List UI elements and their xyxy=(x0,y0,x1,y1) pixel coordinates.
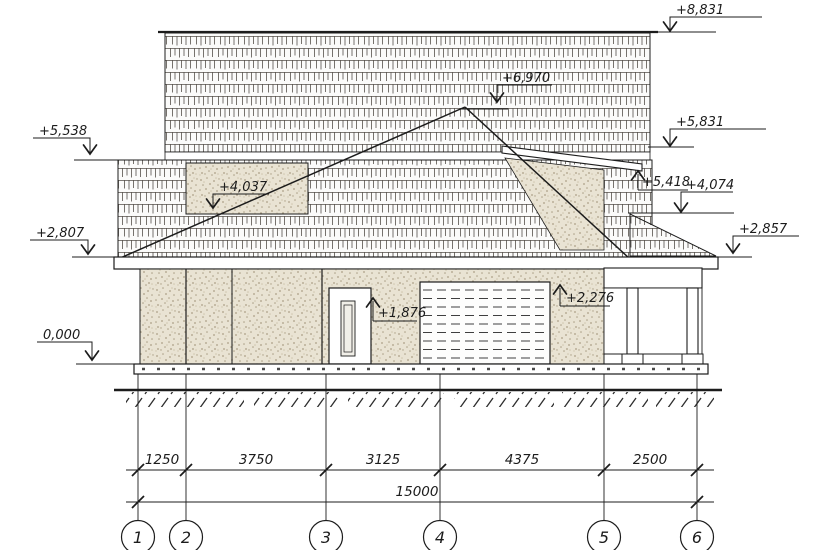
axis-label-2: 2 xyxy=(181,528,191,547)
porch xyxy=(604,268,703,364)
mark-label: +5,831 xyxy=(676,115,724,130)
porch-beam xyxy=(604,268,702,288)
elevation-mark-2807: +2,807 xyxy=(30,226,116,257)
porch-column-right xyxy=(687,288,698,354)
dim-label-seg3: 3125 xyxy=(366,452,400,468)
axis-label-3: 3 xyxy=(321,528,331,547)
axis-label-6: 6 xyxy=(692,528,702,547)
elevation-drawing: 1250 3750 3125 4375 2500 15000 1 2 3 4 5… xyxy=(0,0,825,550)
axis-bubbles xyxy=(122,521,714,550)
axis-label-1: 1 xyxy=(133,528,143,547)
porch-roof-slope xyxy=(630,214,716,256)
porch-column-base xyxy=(682,354,703,364)
dim-label-seg5: 2500 xyxy=(633,452,667,468)
mark-label: +6,970 xyxy=(502,71,550,86)
dim-label-seg2: 3750 xyxy=(239,452,273,468)
elevation-mark-0000: 0,000 xyxy=(37,328,134,364)
dim-label-seg1: 1250 xyxy=(145,452,179,468)
porch-column-base xyxy=(622,354,643,364)
porch-column-left xyxy=(627,288,638,354)
mark-label: +4,074 xyxy=(686,178,734,193)
axis-label-4: 4 xyxy=(435,528,445,547)
building xyxy=(114,32,734,374)
mark-label: +5,538 xyxy=(39,124,87,139)
mark-label: +1,876 xyxy=(378,306,426,321)
plinth-band xyxy=(134,364,708,374)
dim-label-seg4: 4375 xyxy=(505,452,539,468)
ground xyxy=(114,390,722,407)
ground-hatch xyxy=(126,392,714,407)
mark-label: +8,831 xyxy=(676,3,724,18)
mark-label: +5,418 xyxy=(642,175,690,190)
elevation-mark-5831: +5,831 xyxy=(648,115,766,147)
elevation-mark-5538: +5,538 xyxy=(33,124,120,160)
mark-label: +4,037 xyxy=(219,180,268,195)
elevation-mark-8831: +8,831 xyxy=(664,3,763,31)
mark-label: +2,276 xyxy=(566,291,614,306)
entry-door xyxy=(329,288,371,364)
mark-label: +2,857 xyxy=(739,222,788,237)
upper-floor-shingle-wall xyxy=(165,33,650,152)
garage-door xyxy=(420,282,550,364)
mark-label: 0,000 xyxy=(43,328,80,343)
axis-label-5: 5 xyxy=(599,528,609,547)
dim-label-total: 15000 xyxy=(396,484,439,500)
mark-label: +2,807 xyxy=(36,226,85,241)
door-glass xyxy=(341,301,355,356)
elevation-mark-2857: +2,857 xyxy=(714,222,799,257)
roof-fascia xyxy=(114,257,718,269)
